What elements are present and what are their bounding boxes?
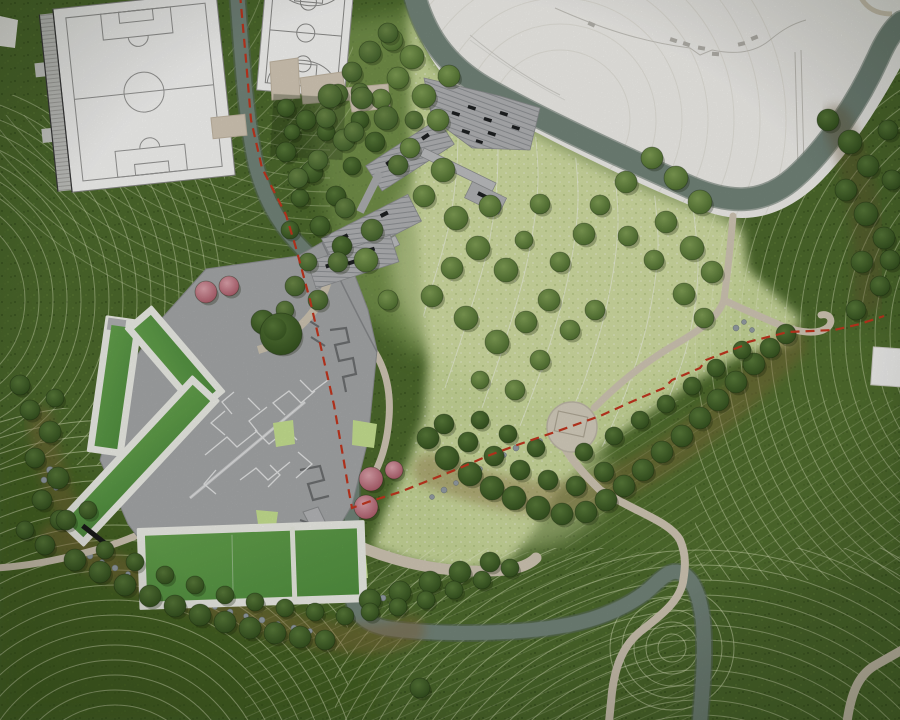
master-plan-svg: [0, 0, 900, 720]
site-plan-canvas: [0, 0, 900, 720]
texture-grain: [0, 0, 900, 720]
